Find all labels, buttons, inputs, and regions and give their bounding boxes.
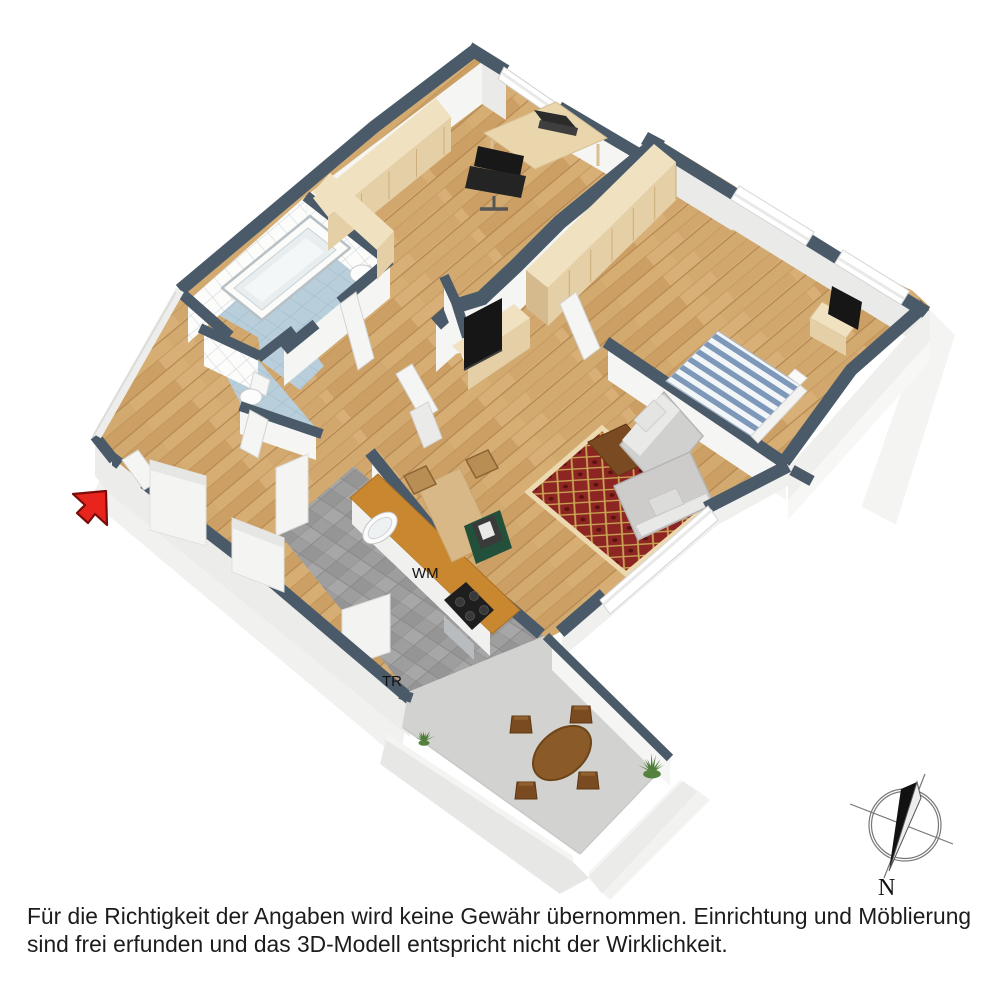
svg-text:sind frei erfunden und das 3D-: sind frei erfunden und das 3D-Modell ent… bbox=[27, 931, 728, 957]
svg-text:N: N bbox=[878, 875, 895, 901]
svg-text:TR: TR bbox=[382, 673, 402, 690]
svg-text:Für die Richtigkeit der Angabe: Für die Richtigkeit der Angaben wird kei… bbox=[27, 903, 971, 929]
svg-text:WM: WM bbox=[412, 565, 439, 582]
